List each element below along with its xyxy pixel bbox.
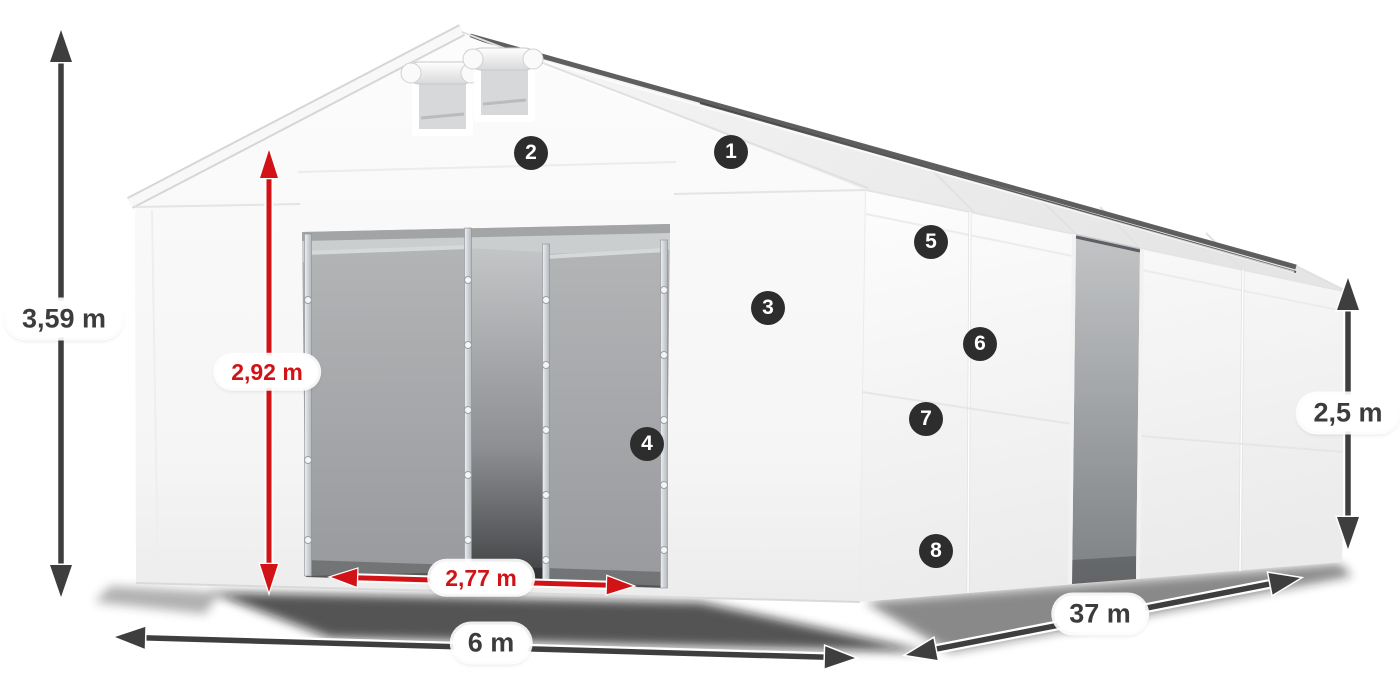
tent-dimension-diagram: 3,59 m 2,92 m 2,77 m 6 m 37 m 2,5 m 1 2 … — [0, 0, 1400, 700]
dimension-label-entrance-width: 2,77 m — [430, 562, 532, 594]
tent-illustration — [0, 0, 1400, 700]
marker-badge-6: 6 — [963, 327, 997, 361]
inner-partition-right — [545, 250, 666, 586]
dimension-label-front-width: 6 m — [453, 624, 530, 661]
dimension-label-side-length: 37 m — [1054, 595, 1146, 632]
marker-badge-1: 1 — [714, 135, 748, 169]
marker-badge-7: 7 — [909, 402, 943, 436]
marker-badge-5: 5 — [914, 225, 948, 259]
marker-badge-8: 8 — [919, 534, 953, 568]
inner-partition-left — [306, 248, 468, 576]
dimension-label-entrance-height: 2,92 m — [216, 356, 318, 388]
marker-badge-4: 4 — [630, 427, 664, 461]
marker-badge-2: 2 — [514, 136, 548, 170]
dimension-label-total-height: 3,59 m — [7, 300, 121, 337]
front-opening-interior — [302, 224, 670, 588]
side-door-opening — [1070, 234, 1142, 584]
marker-badge-3: 3 — [751, 291, 785, 325]
dimension-label-side-height: 2,5 m — [1298, 394, 1397, 431]
